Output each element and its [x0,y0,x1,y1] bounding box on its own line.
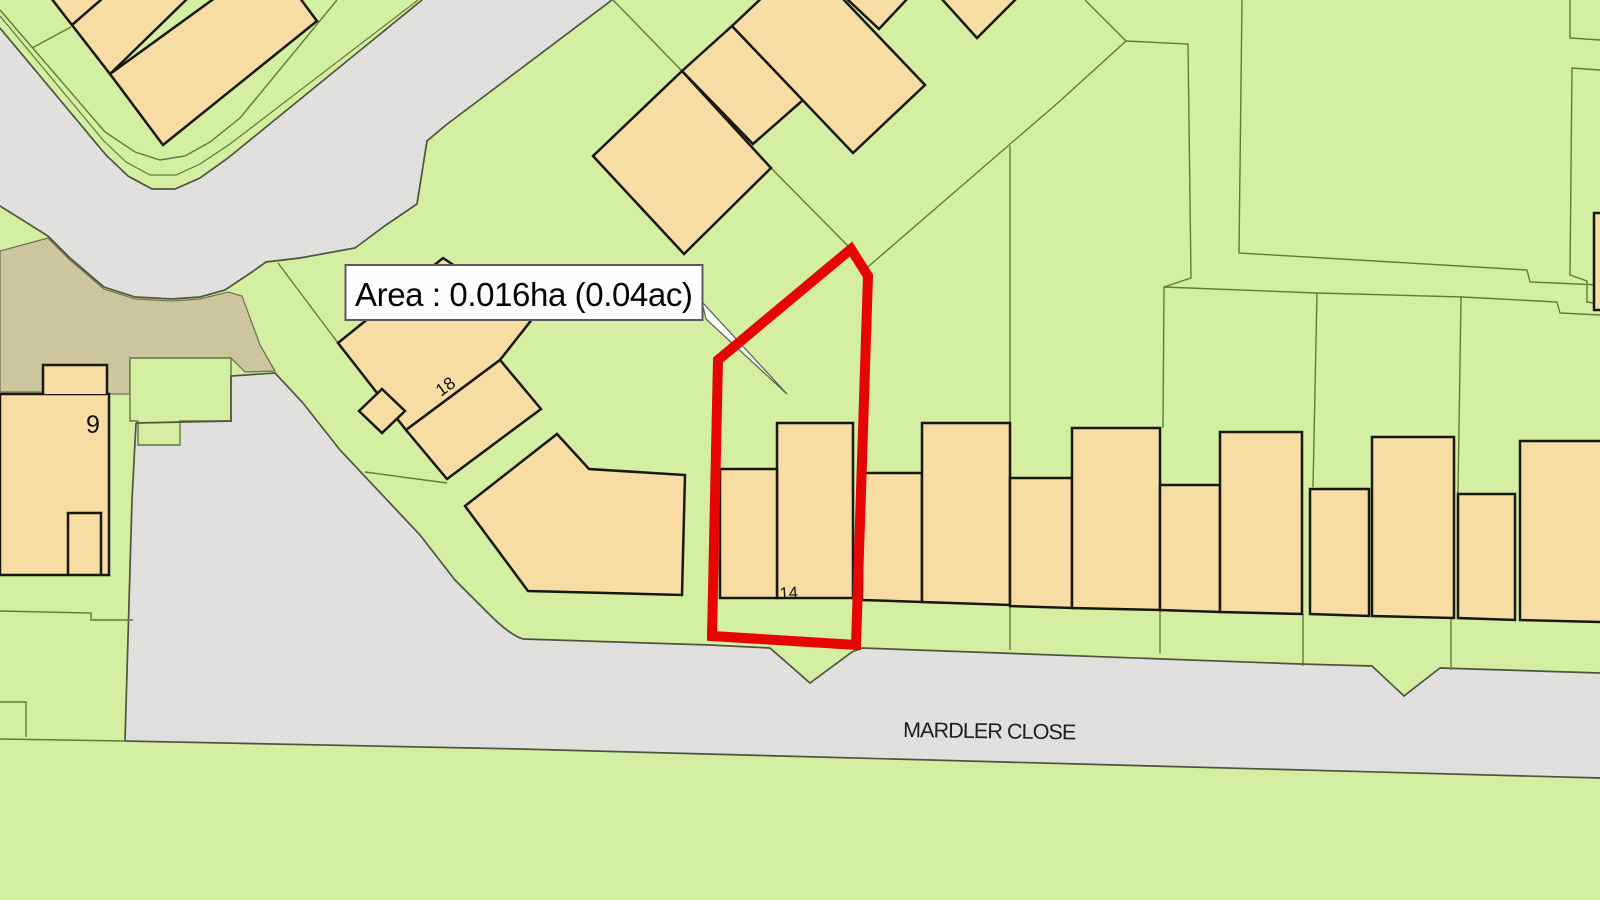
svg-text:Area : 0.016ha (0.04ac): Area : 0.016ha (0.04ac) [355,276,693,313]
svg-text:MARDLER CLOSE: MARDLER CLOSE [903,718,1076,744]
svg-text:9: 9 [86,411,100,439]
svg-text:14: 14 [779,584,799,603]
